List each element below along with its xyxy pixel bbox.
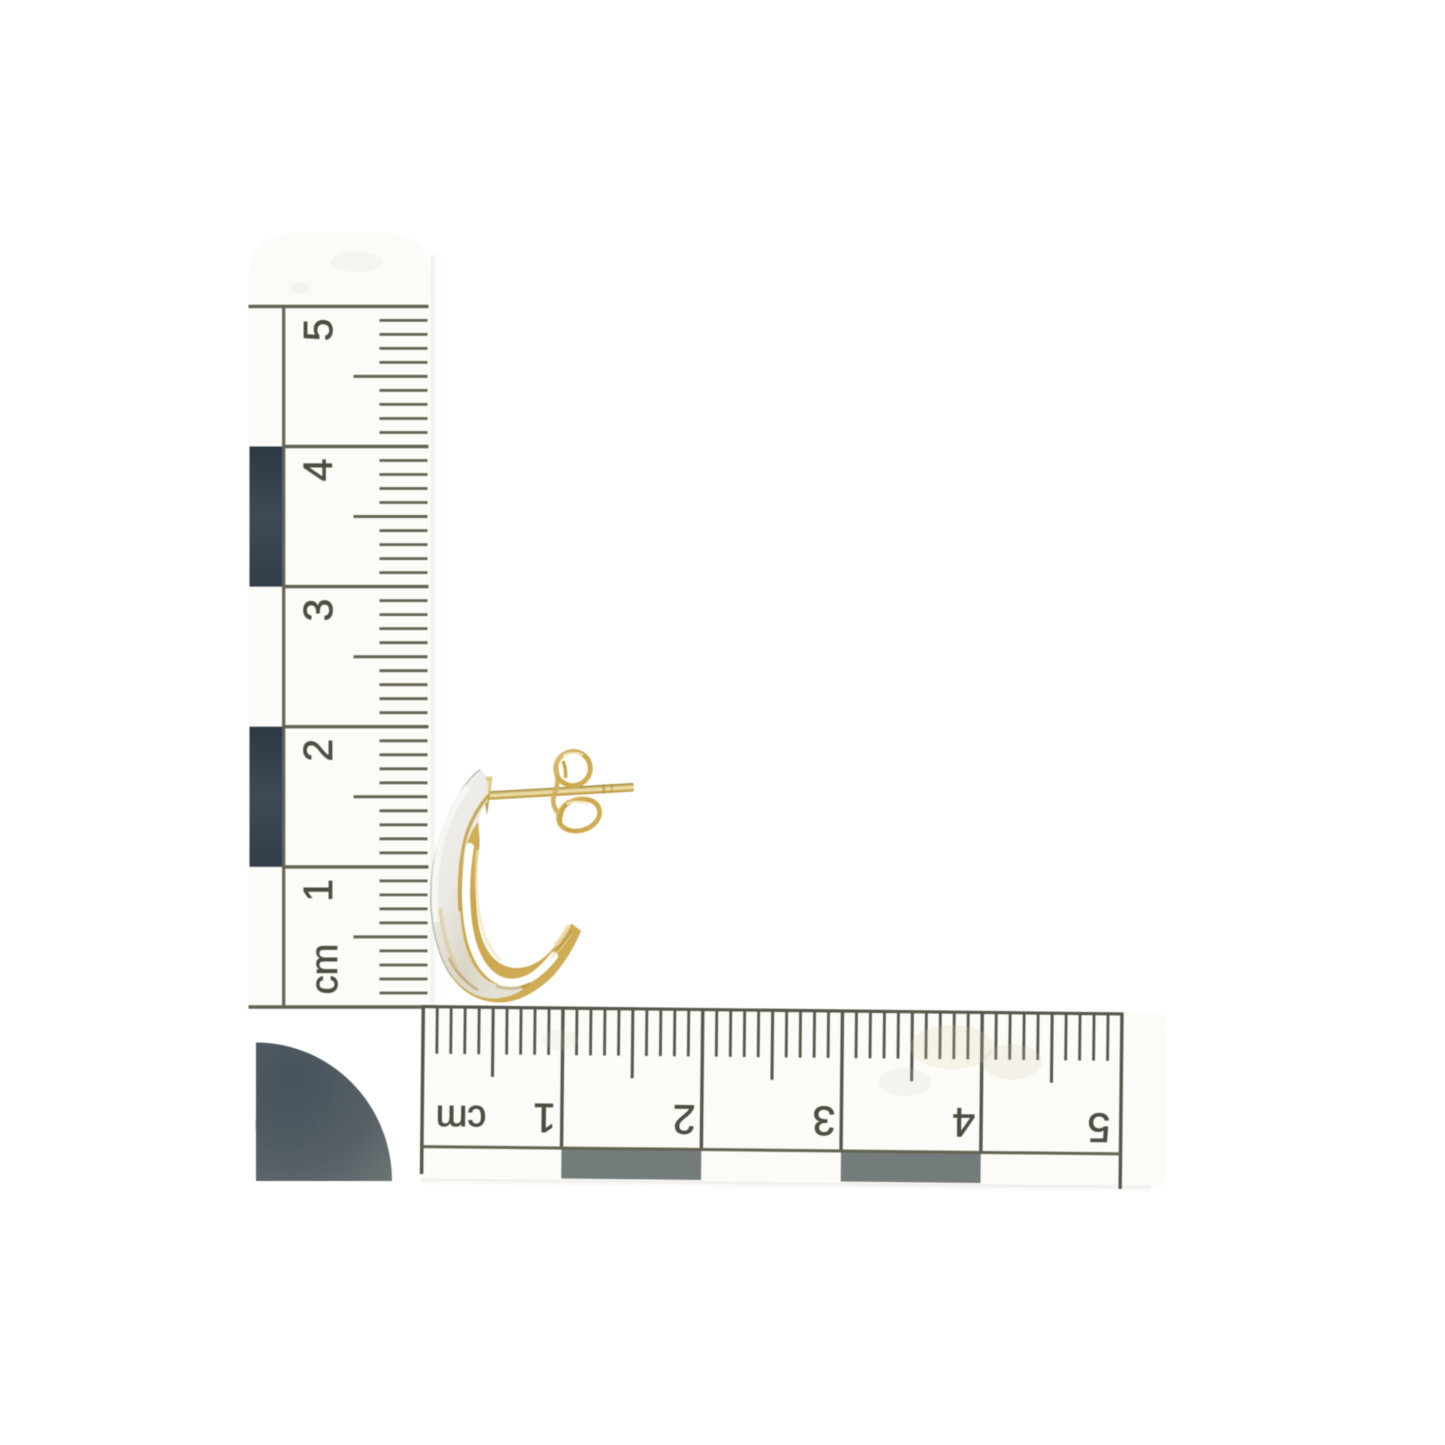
svg-text:1: 1	[295, 879, 341, 902]
svg-text:5: 5	[1087, 1105, 1110, 1151]
svg-text:4: 4	[952, 1099, 975, 1145]
svg-text:5: 5	[295, 318, 341, 341]
svg-text:2: 2	[673, 1096, 696, 1142]
svg-text:2: 2	[295, 739, 341, 762]
svg-text:4: 4	[295, 459, 341, 482]
svg-text:cm: cm	[435, 1097, 486, 1140]
svg-text:cm: cm	[304, 944, 346, 995]
svg-text:3: 3	[295, 599, 341, 622]
svg-text:3: 3	[812, 1098, 835, 1144]
svg-text:1: 1	[533, 1095, 556, 1141]
